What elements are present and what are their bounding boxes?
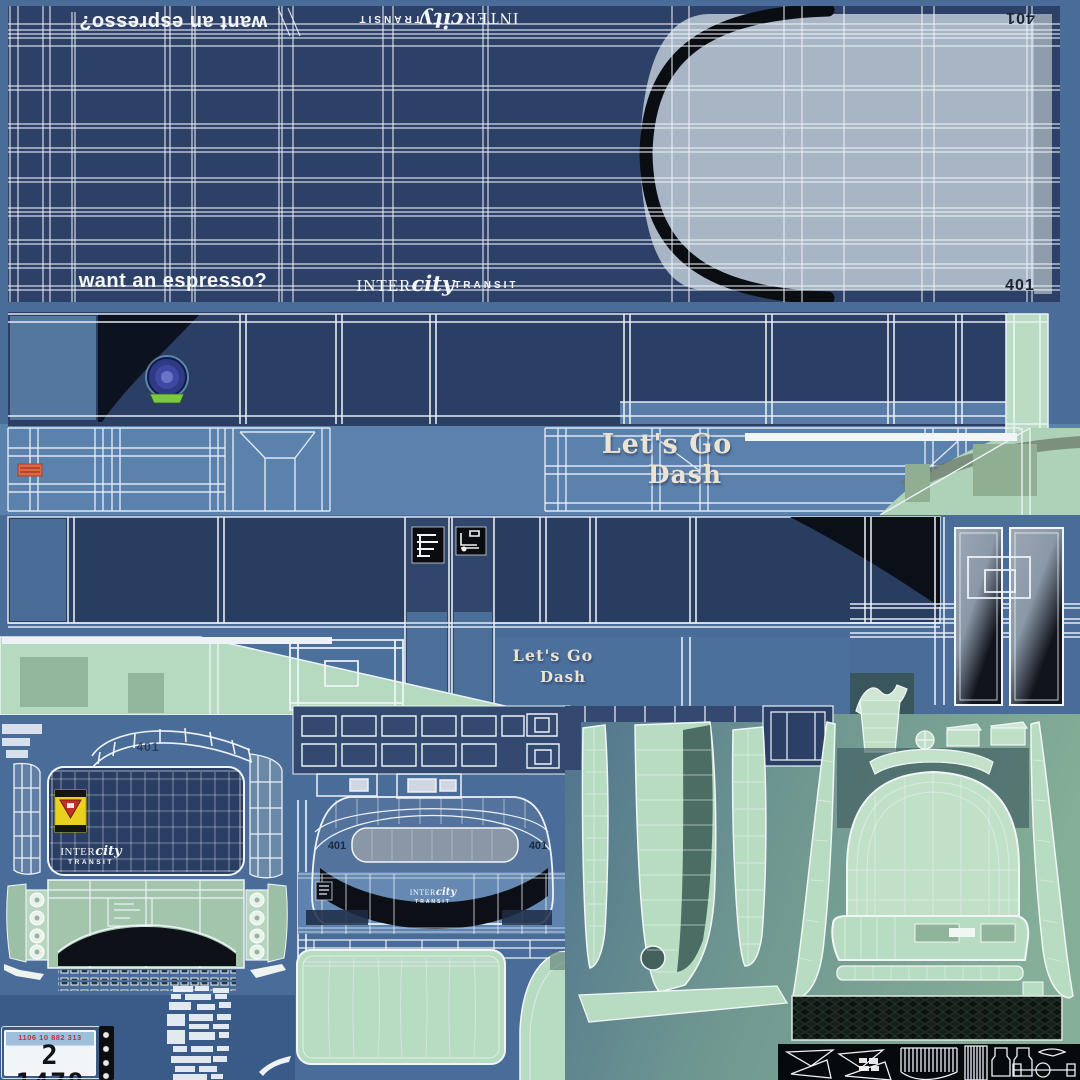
skirt-vent-a	[20, 657, 88, 707]
uv-parts-field	[565, 700, 1080, 1080]
corner-wedge-left	[7, 884, 26, 962]
front-number-left: 401	[320, 840, 354, 852]
transit-seal-emblem	[146, 356, 188, 403]
mirror-arm-left	[4, 964, 44, 980]
roof-cap-wireframe	[92, 728, 252, 768]
tagline-small-line2: Dash	[528, 668, 598, 686]
rear-pillar-left	[14, 763, 40, 874]
rail-sliver	[565, 706, 581, 770]
hub-cap-part	[916, 731, 934, 749]
rear-fleet-number: 401	[124, 740, 172, 754]
roof-edge-strip	[1034, 14, 1052, 294]
brand-wordmark: INTERcityTRANSIT	[345, 271, 530, 296]
small-box-part-2	[991, 722, 1027, 745]
plate-number: 2 1478	[6, 1042, 94, 1080]
slogan-text: want an espresso?	[78, 270, 268, 293]
door-panel-a	[955, 528, 1002, 705]
license-plate: 1106 10 882 313 2 1478	[4, 1030, 96, 1076]
door-column-b-lower	[454, 612, 492, 703]
engine-vent-a	[905, 464, 930, 502]
corner-wedge-right	[268, 884, 287, 962]
slogan-text-flipped: want an espresso?	[78, 10, 268, 33]
rivet-strip	[99, 1026, 114, 1080]
tagline-line1: Let's Go	[592, 429, 742, 460]
front-bumper-part	[832, 916, 1028, 960]
window-lower-trim	[620, 402, 1006, 424]
mirror-arm-right	[250, 964, 286, 978]
rear-pillar-right	[250, 754, 282, 878]
skirt-vent-b	[128, 673, 164, 713]
small-box-part-1	[947, 724, 981, 746]
route-decal	[18, 464, 42, 476]
corner-parts-cluster	[2, 724, 42, 758]
tagline-small-line1: Let's Go	[498, 646, 608, 665]
seat-side-panel	[635, 722, 716, 992]
caution-decal	[55, 790, 86, 832]
uv-texture-atlas: want an espresso? INTERcityTRANSIT 401 w…	[0, 0, 1080, 1080]
destination-headsign	[352, 828, 518, 862]
uv-rear-section	[0, 712, 295, 1007]
seat-side-strip-1	[582, 725, 608, 968]
grille-mesh	[792, 996, 1062, 1040]
bumper-notch-left	[306, 910, 368, 925]
trim-arm-part	[255, 1052, 295, 1080]
door-sign-icon-2	[456, 527, 486, 555]
plate-serial: 1106 10 882 313	[6, 1033, 94, 1042]
roof-number-flipped: 401	[995, 8, 1045, 26]
driver-window	[10, 316, 96, 420]
roof-hatch-panel	[297, 950, 505, 1064]
bumper-trim-bar	[837, 966, 1023, 980]
uv-roof-panel	[8, 6, 1060, 302]
rear-body-lower	[48, 880, 244, 968]
front-number-right: 401	[521, 840, 555, 852]
trim-arm-shape	[259, 1056, 291, 1076]
tagline-line2: Dash	[640, 460, 730, 489]
rear-brand-logo: INTERcity TRANSIT	[52, 843, 130, 867]
door-sign-icon-1	[412, 527, 444, 563]
rail-band-cont	[565, 706, 795, 722]
roof-number: 401	[995, 277, 1045, 295]
grille-row-1	[58, 970, 236, 980]
decal-blocks	[167, 986, 231, 1080]
window-pane-light	[10, 519, 66, 621]
front-brand-logo: INTERcity TRANSIT	[396, 883, 470, 905]
seat-frame-top	[860, 700, 900, 752]
uv-side-band-upper	[0, 306, 1080, 515]
tail-light-stack-right	[246, 890, 268, 960]
parts-tray	[778, 1044, 1080, 1080]
vent-boxes	[317, 774, 461, 798]
front-decal-box	[316, 882, 332, 900]
engine-vent-b	[973, 444, 1037, 496]
tail-light-stack-left	[26, 890, 48, 960]
decal-sheet	[163, 984, 243, 1080]
bumper-notch-right	[502, 910, 552, 925]
brand-wordmark-flipped: INTERcityTRANSIT	[345, 8, 530, 33]
white-stripe	[745, 433, 1017, 441]
white-stripe-2	[2, 637, 332, 644]
door-panel-b	[1010, 528, 1063, 705]
